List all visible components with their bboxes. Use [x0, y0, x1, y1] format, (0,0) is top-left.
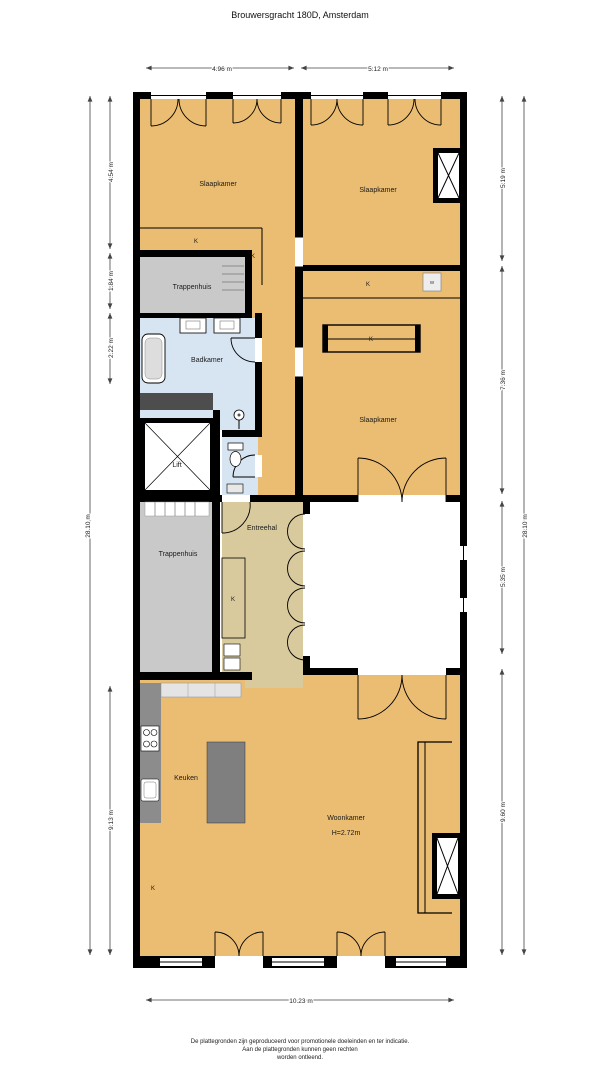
label-lift: Lift	[172, 462, 181, 469]
label-closet-3: K	[366, 282, 370, 288]
label-slaapkamer-2: Slaapkamer	[359, 187, 397, 194]
dim-left-total: 28.10 m	[85, 514, 92, 538]
label-closet-1: K	[194, 239, 198, 245]
disclaimer-line-2: Aan de plattegronden kunnen geen rechten	[242, 1047, 357, 1053]
dim-right-1: 5.19 m	[500, 168, 507, 188]
label-ceiling-height: H=2.72m	[332, 830, 361, 837]
label-slaapkamer-3: Slaapkamer	[359, 417, 397, 424]
dim-right-4: 9.60 m	[500, 802, 507, 822]
chimney-shaft-top	[433, 148, 467, 203]
label-woonkamer: Woonkamer	[327, 815, 365, 822]
entree-neck	[245, 675, 303, 688]
kitchen-counter-left	[140, 683, 161, 823]
dim-top-left: 4.96 m	[212, 66, 232, 73]
room-woonkamer	[140, 675, 460, 956]
label-badkamer: Badkamer	[191, 357, 224, 364]
stove-icon	[141, 726, 159, 751]
dim-top-right: 5.12 m	[368, 66, 388, 73]
dim-left-2: 1.84 m	[108, 271, 115, 291]
dim-right-3: 5.35 m	[500, 567, 507, 587]
stairs-icon-2	[145, 502, 209, 516]
floorplan-canvas: Brouwersgracht 180D, Amsterdam	[0, 0, 600, 1067]
page-title: Brouwersgracht 180D, Amsterdam	[231, 10, 369, 20]
disclaimer-line-1: De plattegronden zijn geproduceerd voor …	[191, 1039, 410, 1045]
label-trappenhuis-2: Trappenhuis	[159, 551, 198, 558]
dim-left-1: 4.54 m	[108, 162, 115, 182]
patio-void	[310, 502, 458, 668]
room-trappenhuis-2	[140, 502, 212, 672]
dim-right-2: 7.36 m	[500, 370, 507, 390]
bathtub-icon	[142, 334, 165, 383]
lift-shaft	[140, 418, 215, 495]
disclaimer: De plattegronden zijn geproduceerd voor …	[191, 1039, 410, 1061]
dim-left-3: 2.22 m	[108, 338, 115, 358]
label-entreehal: Entreehal	[247, 525, 277, 532]
storage-niche	[140, 393, 213, 410]
dim-left-4: 9.13 m	[108, 810, 115, 830]
divider-wall	[295, 99, 303, 502]
label-keuken: Keuken	[174, 775, 198, 782]
disclaimer-line-3: worden ontleend.	[276, 1055, 323, 1061]
label-closet-6: K	[151, 886, 155, 892]
dim-bottom: 10.23 m	[289, 998, 313, 1005]
label-closet-5: K	[231, 597, 235, 603]
sink-icon	[141, 779, 159, 801]
label-slaapkamer-1: Slaapkamer	[199, 181, 237, 188]
label-closet-2: K	[251, 254, 255, 260]
label-trappenhuis-1: Trappenhuis	[173, 284, 212, 291]
label-closet-4: K	[369, 337, 373, 343]
chimney-shaft-bottom	[432, 833, 467, 899]
dim-right-total: 28.10 m	[522, 514, 529, 538]
kitchen-counter-top	[161, 683, 241, 697]
kitchen-island	[207, 742, 245, 823]
